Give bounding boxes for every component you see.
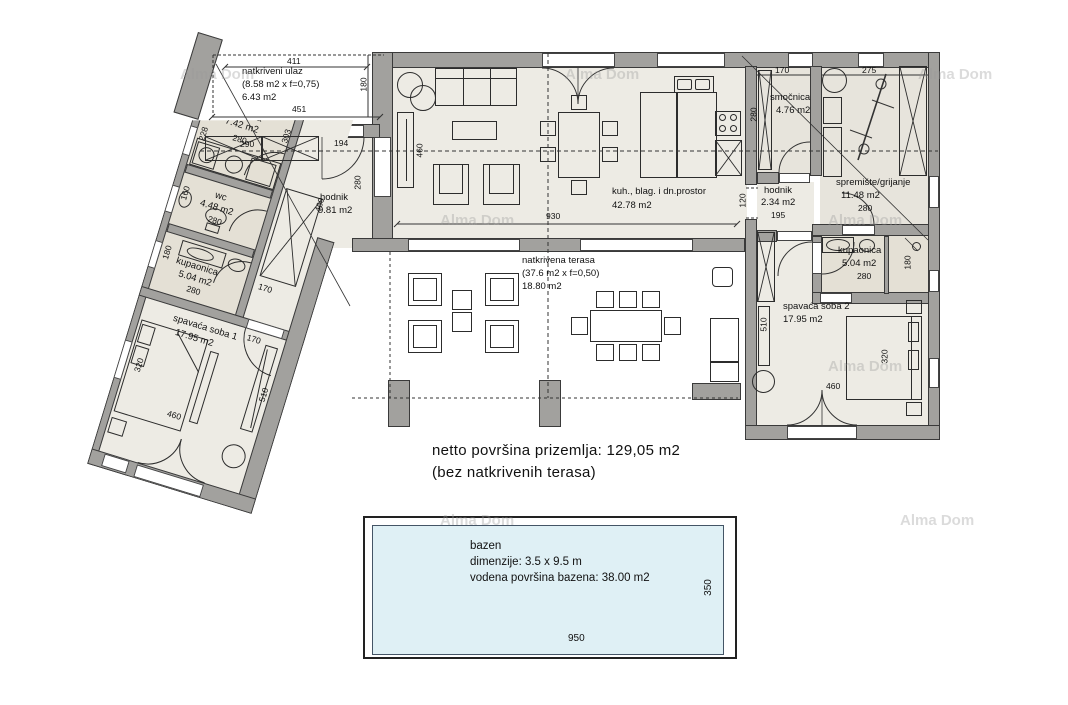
net-area-note: (bez natkrivenih terasa) [432,462,596,483]
dim: 460 [826,382,840,391]
kupaonica2-width-dim: 280 [857,272,871,281]
net-area-text: netto površina prizemlja: 129,05 m2 [432,440,680,461]
hodnik1-area: 9.81 m2 [318,205,352,217]
smocnica-area: 4.76 m2 [776,105,810,117]
floor-plan-canvas: praonica 7.42 m2 280 wc 4.48 m2 280 kupa… [0,0,1068,705]
dim: 180 [360,77,369,91]
pool-water [372,525,724,655]
watermark: Alma Dom [900,512,974,529]
smocnica-label: smočnica [770,92,810,104]
entry-area: 6.43 m2 [242,92,276,104]
pool-area: vodena površina bazena: 38.00 m2 [470,570,650,586]
terasa-area: 18.80 m2 [522,281,562,293]
watermark: Alma Dom [828,358,902,375]
pool-width-dim: 950 [568,634,585,643]
dim: 280 [750,107,759,121]
spremiste-area: 11.48 m2 [841,190,880,202]
watermark: Alma Dom [440,512,514,529]
hodnik1-label: hodnik [320,192,348,204]
kupaonica2-area: 5.04 m2 [842,258,876,270]
hodnik2-label: hodnik [764,185,792,197]
watermark: Alma Dom [565,66,639,83]
hodnik2-area: 2.34 m2 [761,197,795,209]
pool-dimensions: dimenzije: 3.5 x 9.5 m [470,554,582,570]
watermark: Alma Dom [828,212,902,229]
dim: 411 [287,57,301,66]
watermark: Alma Dom [440,212,514,229]
living-label: kuh., blag. i dn.prostor [612,186,706,198]
terasa-label: natkrivena terasa [522,255,595,267]
dim: 170 [775,66,789,75]
pool-height-dim: 350 [704,579,713,596]
terasa-calc: (37.6 m2 x f=0,50) [522,268,599,280]
dim: 275 [862,66,876,75]
dim: 930 [546,212,560,221]
dim: 120 [739,193,748,207]
pool-name: bazen [470,538,501,554]
watermark: Alma Dom [180,66,254,83]
dim: 194 [334,139,348,148]
dim: 510 [760,317,769,331]
living-area: 42.78 m2 [612,200,652,212]
dim: 460 [416,143,425,157]
spavaca2-label: spavaća soba 2 [783,301,850,313]
dim: 451 [292,105,306,114]
spremiste-label: spremište/grijanje [836,177,910,189]
spavaca2-area: 17.95 m2 [783,314,823,326]
watermark: Alma Dom [918,66,992,83]
hodnik2-width-dim: 195 [771,211,785,220]
dim: 280 [354,175,363,189]
kupaonica2-label: kupaonica [838,245,881,257]
dim: 180 [904,255,913,269]
dim: 290 [240,140,254,149]
